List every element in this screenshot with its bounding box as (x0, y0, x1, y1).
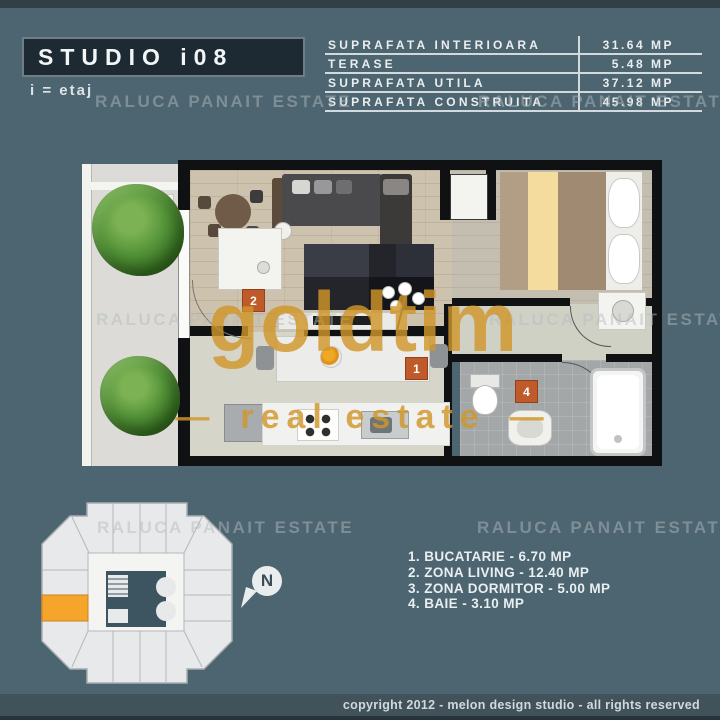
table-row: SUPRAFATA UTILA 37.12 MP (325, 74, 702, 93)
bathroom-sink (508, 410, 552, 446)
wall (178, 346, 190, 466)
flower (390, 300, 402, 312)
row-label: TERASE (325, 57, 581, 71)
stairwell (108, 609, 128, 623)
toilet (470, 374, 498, 414)
legend-item: 1. BUCATARIE - 6.70 MP (408, 549, 610, 565)
bed-blanket (558, 172, 606, 290)
fruit-bowl (320, 346, 342, 368)
bed-pillow (608, 234, 640, 284)
north-label: N (261, 571, 273, 591)
toilet-bowl (472, 385, 498, 415)
legend-item: 4. BAIE - 3.10 MP (408, 596, 610, 612)
row-value: 31.64 MP (581, 38, 702, 52)
wall (452, 354, 562, 362)
agency-watermark: RALUCA PANAIT ESTATE (95, 92, 352, 112)
table-row: SUPRAFATA INTERIOARA 31.64 MP (325, 36, 702, 55)
flower (412, 292, 425, 305)
flower (398, 282, 412, 296)
wall (452, 298, 570, 306)
door-frame (178, 202, 190, 210)
bar-stool (430, 344, 448, 368)
sofa (272, 174, 412, 248)
bar-stool (256, 346, 274, 370)
wardrobe (450, 174, 488, 220)
rug-patch (304, 244, 369, 277)
elevator (156, 601, 176, 621)
area-marker-kitchen: 1 (405, 357, 428, 380)
wall (178, 160, 662, 170)
flower (382, 286, 395, 299)
floor-note: i = etaj (30, 82, 93, 99)
bathtub-drain (614, 435, 622, 443)
desk-lamp (257, 261, 270, 274)
sink-basin (517, 418, 543, 438)
terrace-plant (100, 356, 180, 436)
agency-watermark: RALUCA PANAIT ESTATE (477, 518, 720, 538)
copyright-text: copyright 2012 - melon design studio - a… (343, 694, 700, 716)
sofa-pillow (314, 180, 332, 194)
row-value: 5.48 MP (581, 57, 702, 71)
agency-watermark: RALUCA PANAIT ESTATE (97, 518, 354, 538)
dining-chair (250, 190, 263, 203)
kitchen-sink (361, 411, 409, 439)
terrace-railing (82, 164, 92, 466)
wall (440, 170, 450, 220)
table-row: TERASE 5.48 MP (325, 55, 702, 74)
row-label: SUPRAFATA INTERIOARA (325, 38, 581, 52)
area-legend: 1. BUCATARIE - 6.70 MP 2. ZONA LIVING - … (408, 549, 610, 612)
bed (500, 172, 642, 290)
top-strip (0, 0, 720, 8)
kitchen-counter (262, 402, 450, 446)
legend-item: 2. ZONA LIVING - 12.40 MP (408, 565, 610, 581)
area-marker-living: 2 (242, 289, 265, 312)
wall (178, 160, 190, 202)
page-title: STUDIO i08 (24, 44, 233, 71)
sink-basin (370, 417, 392, 433)
wall (178, 456, 662, 466)
elevator (156, 577, 176, 597)
bed-blanket-stripe (528, 172, 558, 290)
desk (218, 228, 282, 290)
stove (297, 409, 339, 441)
wall (606, 354, 652, 362)
compass: N (252, 566, 282, 596)
bed-pillow (608, 178, 640, 228)
title-box: STUDIO i08 (22, 37, 305, 77)
flower-vase (378, 282, 426, 334)
bathtub (590, 368, 646, 456)
sofa-pillow (383, 179, 409, 195)
fridge (224, 404, 264, 442)
footer-edge (0, 716, 720, 720)
row-label: SUPRAFATA UTILA (325, 76, 581, 90)
row-value: 37.12 MP (581, 76, 702, 90)
highlighted-unit (42, 595, 88, 621)
agency-watermark: RALUCA PANAIT ESTATE (478, 92, 720, 112)
legend-item: 3. ZONA DORMITOR - 5.00 MP (408, 581, 610, 597)
agency-watermark: RALUCA PANAIT ESTATE (489, 310, 720, 330)
dining-table (215, 194, 251, 230)
sofa-pillow (336, 180, 352, 194)
flyer-canvas: STUDIO i08 i = etaj SUPRAFATA INTERIOARA… (0, 0, 720, 720)
footer-bar: copyright 2012 - melon design studio - a… (0, 694, 720, 716)
sofa-pillow (292, 180, 310, 194)
door-frame (178, 338, 190, 346)
area-marker-bathroom: 4 (515, 380, 538, 403)
terrace-plant (92, 184, 184, 276)
rug-patch (396, 244, 434, 277)
agency-watermark: RALUCA PANAIT ESTATE (96, 310, 353, 330)
dining-chair (198, 196, 211, 209)
